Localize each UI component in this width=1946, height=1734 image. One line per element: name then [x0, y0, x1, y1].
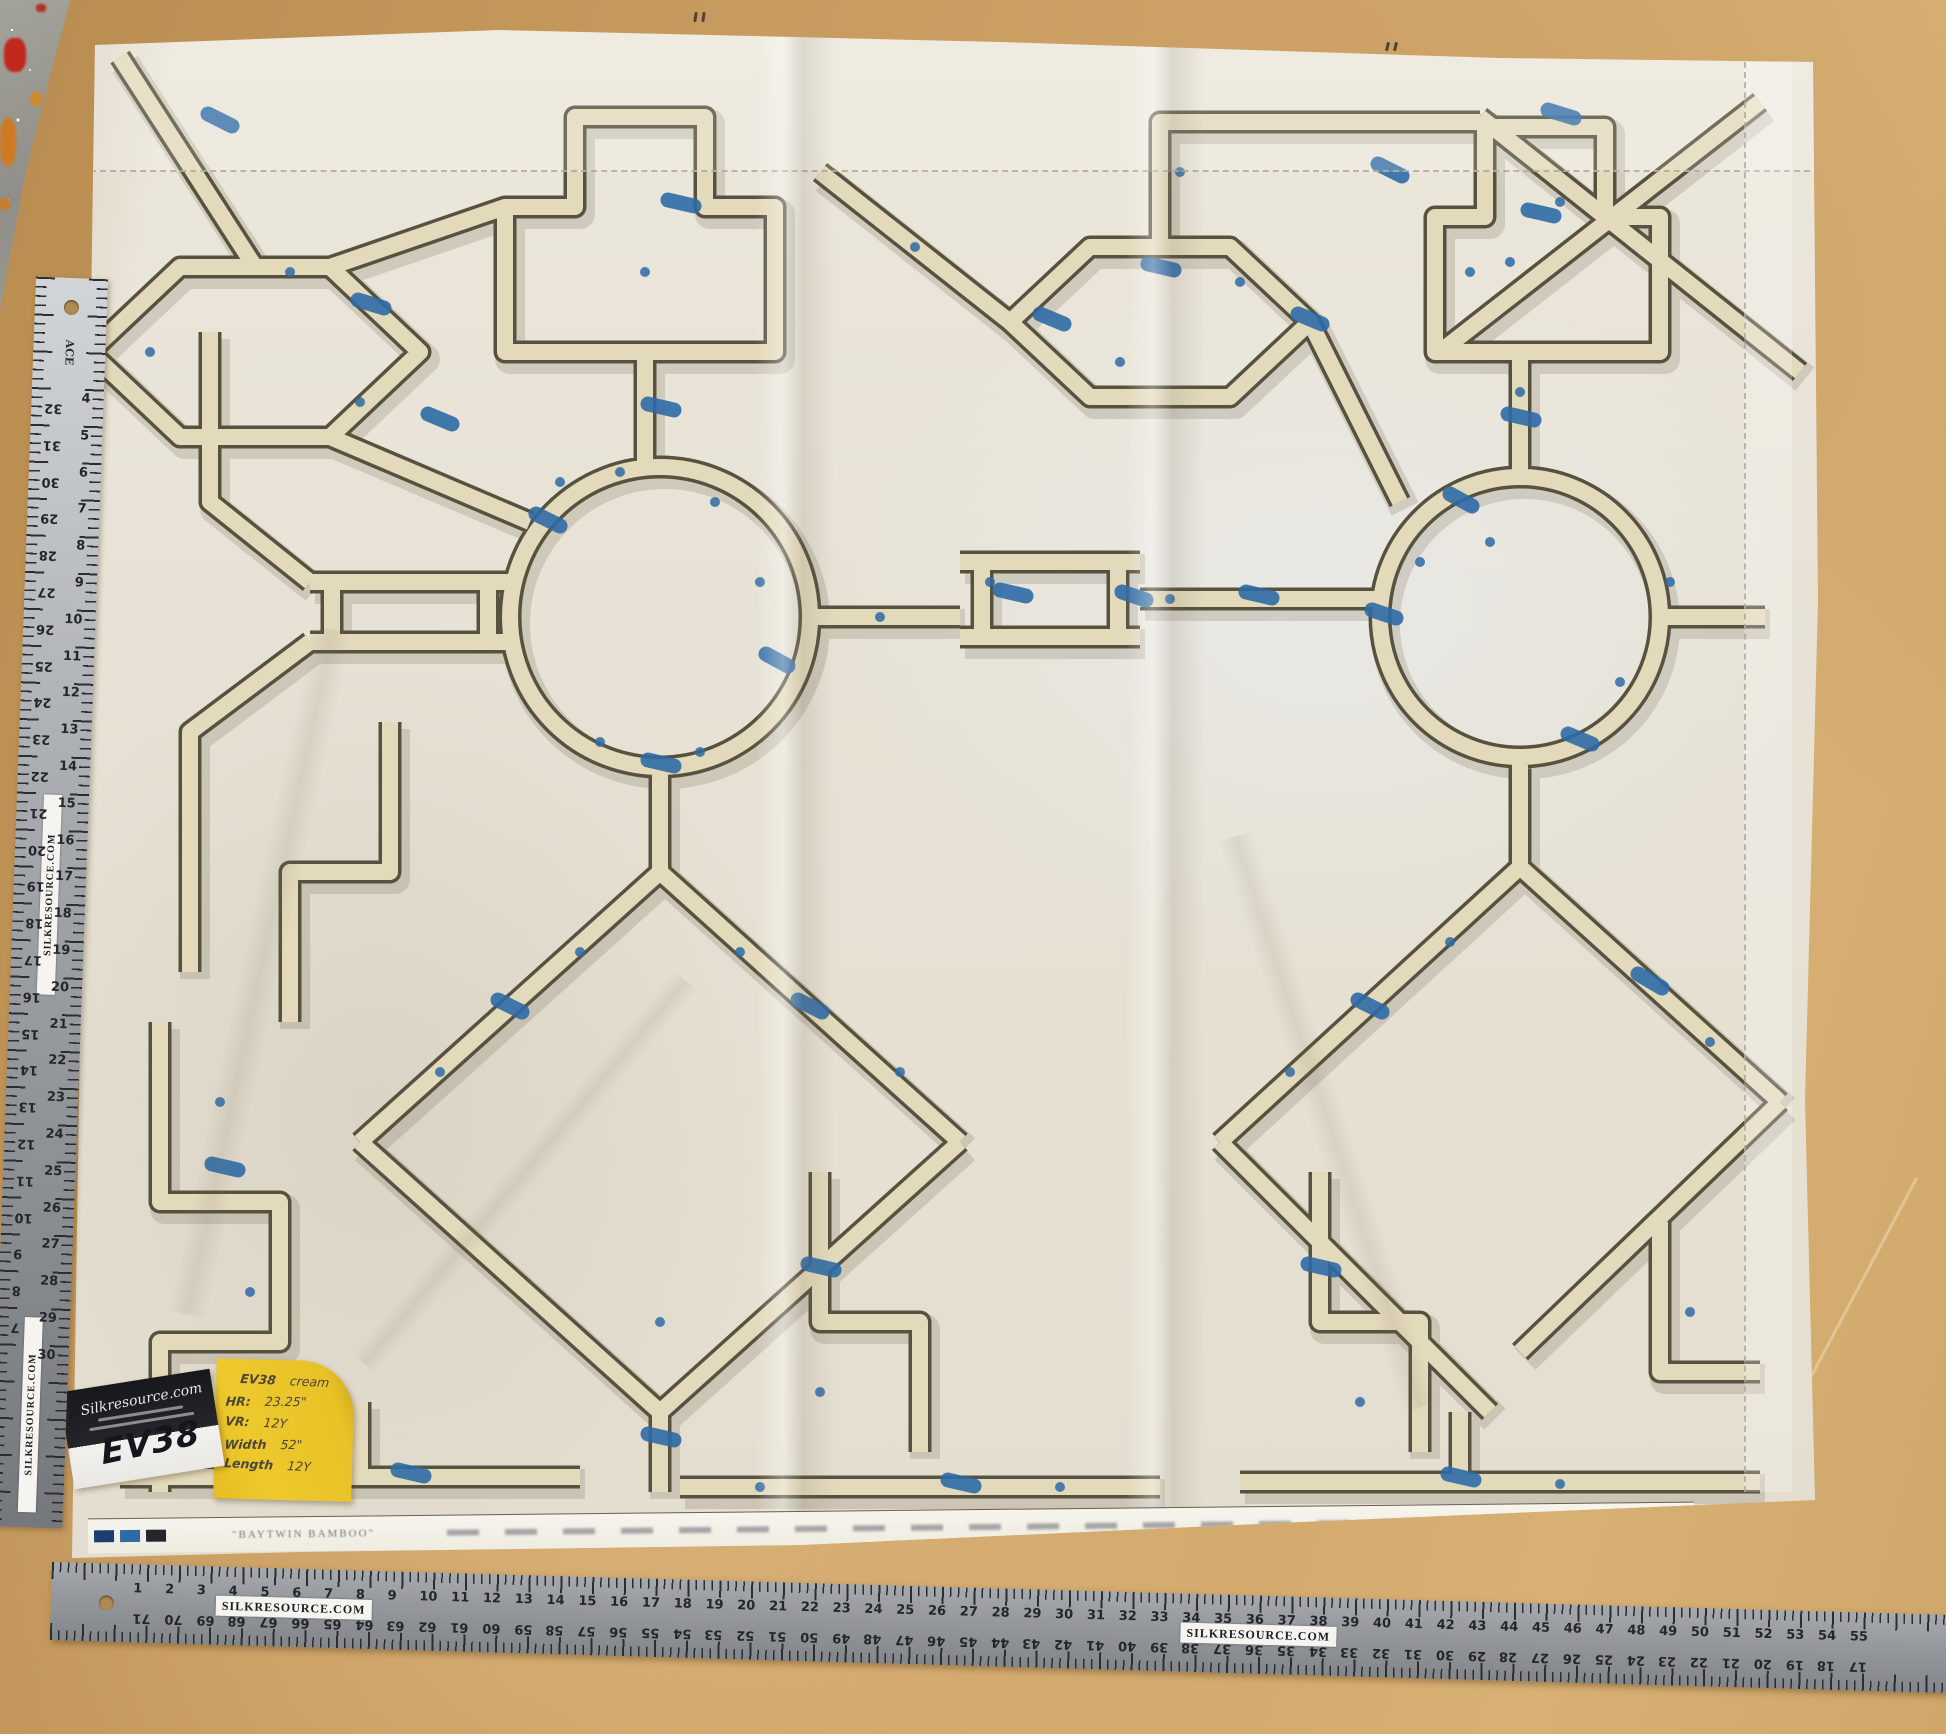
ruler-number: 22: [801, 1600, 820, 1615]
ruler-number: 40: [1118, 1638, 1137, 1653]
ruler-number: 14: [20, 1062, 39, 1078]
ruler-number: 51: [768, 1628, 787, 1643]
ruler-number: 35: [1277, 1642, 1296, 1657]
ruler-number: 45: [959, 1633, 978, 1648]
ruler-number: 2: [165, 1582, 174, 1597]
photo-fabric-sample-scene: { "scene": { "description": "Cream bambo…: [0, 0, 1946, 1734]
ruler-number: 59: [514, 1621, 533, 1636]
ruler-number: 15: [578, 1594, 597, 1609]
ruler-number: 47: [895, 1632, 914, 1647]
ruler-number: 10: [14, 1209, 33, 1225]
ruler-number: 23: [1658, 1653, 1677, 1668]
ruler-number: 22: [30, 768, 49, 784]
ruler-number: 70: [164, 1611, 183, 1626]
ruler-number: 21: [49, 1016, 68, 1032]
ruler-number: 30: [1055, 1607, 1074, 1622]
ruler-number: 18: [53, 906, 72, 922]
ruler-number: 51: [1722, 1626, 1741, 1641]
ruler-number: 21: [769, 1599, 788, 1614]
ruler-number: 27: [1531, 1649, 1550, 1664]
ruler-number: 24: [33, 694, 52, 710]
ruler-number: 10: [419, 1589, 438, 1604]
ruler-number: 13: [60, 722, 79, 738]
ruler-number: 31: [1404, 1646, 1423, 1661]
ruler-number: 18: [673, 1596, 692, 1611]
ruler-number: 55: [1850, 1629, 1869, 1644]
ruler-number: 32: [44, 400, 63, 416]
ruler-number: 50: [800, 1629, 819, 1644]
ruler-number: 28: [991, 1605, 1010, 1620]
ruler-number: 36: [1246, 1612, 1265, 1627]
ruler-number: 50: [1691, 1625, 1710, 1640]
ruler-number: 25: [35, 657, 54, 673]
ruler-number: 16: [610, 1595, 629, 1610]
ruler-number: 27: [37, 584, 56, 600]
ruler-number: 5: [260, 1585, 269, 1600]
ruler-number: 29: [40, 510, 59, 526]
note-handwritten-line: VR:12Y: [224, 1410, 346, 1437]
ruler-number: 55: [641, 1624, 660, 1639]
ruler-number: 16: [22, 988, 41, 1004]
ruler-number: 32: [1372, 1645, 1391, 1660]
ruler-number: 12: [17, 1136, 36, 1152]
red-paint-mark: [36, 4, 46, 12]
ruler-number: 39: [1341, 1615, 1360, 1630]
ruler-number: 71: [132, 1610, 151, 1625]
ruler-number: 11: [451, 1590, 470, 1605]
ruler-number: 9: [387, 1588, 396, 1603]
ruler-number: 18: [25, 915, 44, 931]
ruler-number: 65: [323, 1616, 342, 1631]
ruler-number: 46: [1564, 1621, 1583, 1636]
ruler-number: 68: [228, 1613, 247, 1628]
ruler-number: 34: [1308, 1643, 1327, 1658]
ruler-number: 18: [1817, 1657, 1836, 1672]
ruler-number: 57: [577, 1623, 596, 1638]
ruler-number: 24: [1626, 1652, 1645, 1667]
ruler-number: 19: [26, 878, 45, 894]
orange-paint-mark: [0, 198, 10, 210]
ruler-number: 63: [387, 1617, 406, 1632]
ruler-number: 44: [991, 1634, 1010, 1649]
ruler-number: 6: [292, 1586, 301, 1601]
ruler-number: 25: [44, 1163, 63, 1179]
note-handwritten-line: HR:23.25": [225, 1391, 347, 1413]
ruler-number: 43: [1468, 1619, 1487, 1634]
ruler-number: 12: [483, 1591, 502, 1606]
ruler-number: 20: [1753, 1656, 1772, 1671]
ruler-brand-text: ACE: [62, 339, 76, 365]
ruler-number: 24: [45, 1127, 64, 1143]
ruler-number: 21: [29, 805, 48, 821]
note-handwritten-line: Length12Y: [223, 1452, 345, 1479]
orange-paint-mark: [0, 118, 16, 166]
ruler-number: 27: [41, 1237, 60, 1253]
ruler-number: 17: [55, 869, 74, 885]
ruler-number: 54: [673, 1625, 692, 1640]
ruler-number: 41: [1086, 1637, 1105, 1652]
ruler-number: 9: [75, 575, 85, 590]
yellow-sticky-note: EV38creamHR:23.25"VR:12YWidth52"Length12…: [213, 1358, 355, 1502]
ruler-number: 49: [1659, 1624, 1678, 1639]
ruler-number: 25: [1594, 1651, 1613, 1666]
ruler-number: 11: [16, 1172, 35, 1188]
ruler-number: 13: [515, 1592, 534, 1607]
silkresource-sticker: SILKRESOURCE.COM: [18, 1317, 43, 1513]
ruler-number: 39: [1149, 1639, 1168, 1654]
ruler-number: 14: [546, 1593, 565, 1608]
ruler-number: 26: [43, 1200, 62, 1216]
ruler-number: 56: [609, 1624, 628, 1639]
ruler-number: 8: [12, 1283, 22, 1298]
ruler-hanging-hole: [64, 300, 80, 316]
ruler-number: 8: [356, 1587, 365, 1602]
orange-paint-mark: [30, 92, 42, 106]
ruler-number: 58: [545, 1622, 564, 1637]
ruler-number: 53: [704, 1626, 723, 1641]
ruler-number: 4: [228, 1584, 237, 1599]
ruler-number: 19: [705, 1597, 724, 1612]
ruler-number: 43: [1022, 1635, 1041, 1650]
ruler-number: 30: [37, 1347, 56, 1363]
ruler-number: 52: [736, 1627, 755, 1642]
ruler-number: 26: [36, 621, 55, 637]
ruler-number: 34: [1182, 1611, 1201, 1626]
ruler-number: 13: [18, 1099, 37, 1115]
ruler-number: 25: [896, 1603, 915, 1618]
ruler-number: 38: [1181, 1640, 1200, 1655]
ruler-number: 64: [355, 1616, 374, 1631]
ruler-number: 29: [1467, 1648, 1486, 1663]
ruler-number: 28: [40, 1274, 59, 1290]
ruler-number: 7: [324, 1587, 333, 1602]
ruler-number: 20: [28, 841, 47, 857]
ruler-number: 31: [1087, 1608, 1106, 1623]
ruler-number: 36: [1245, 1641, 1264, 1656]
ruler-number: 23: [47, 1090, 66, 1106]
ruler-number: 35: [1214, 1611, 1233, 1626]
ruler-number: 38: [1309, 1614, 1328, 1629]
ruler-number: 15: [57, 796, 76, 812]
ruler-number: 31: [43, 437, 62, 453]
selvage-color-chip: [146, 1530, 166, 1542]
ruler-number: 14: [59, 759, 78, 775]
ruler-number: 20: [51, 980, 70, 996]
selvage-printed-text: "BAYTWIN BAMBOO": [232, 1527, 375, 1540]
ruler-number: 26: [1563, 1650, 1582, 1665]
ruler-number: 45: [1532, 1620, 1551, 1635]
ruler-number: 44: [1500, 1619, 1519, 1634]
ruler-number: 53: [1786, 1627, 1805, 1642]
selvage-color-chip: [94, 1530, 114, 1542]
fabric-panel: "BAYTWIN BAMBOO": [60, 22, 1820, 1567]
ruler-number: 20: [737, 1598, 756, 1613]
ruler-number: 33: [1340, 1644, 1359, 1659]
ruler-number: 9: [13, 1246, 23, 1261]
ruler-number: 46: [927, 1632, 946, 1647]
ruler-number: 48: [863, 1631, 882, 1646]
ruler-number: 27: [960, 1604, 979, 1619]
ruler-number: 66: [291, 1615, 310, 1630]
ruler-hanging-hole: [99, 1595, 114, 1610]
ruler-number: 40: [1373, 1616, 1392, 1631]
red-paint-mark: [4, 38, 26, 72]
ruler-number: 47: [1595, 1622, 1614, 1637]
card-handwritten-code: EV38: [99, 1412, 202, 1473]
ruler-number: 17: [24, 952, 43, 968]
ruler-number: 28: [1499, 1648, 1518, 1663]
ruler-number: 15: [21, 1025, 40, 1041]
bamboo-trellis-pattern: [60, 22, 1820, 1567]
ruler-number: 33: [1150, 1610, 1169, 1625]
ruler-number: 24: [864, 1602, 883, 1617]
fabric-right-hem: [1744, 52, 1792, 1492]
ruler-number: 42: [1054, 1636, 1073, 1651]
ruler-number: 21: [1722, 1655, 1741, 1670]
ruler-number: 67: [259, 1614, 278, 1629]
ruler-number: 28: [39, 547, 58, 563]
ruler-number: 19: [52, 943, 71, 959]
ruler-number: 69: [196, 1612, 215, 1627]
ruler-number: 29: [39, 1310, 58, 1326]
ruler-number: 32: [1118, 1609, 1137, 1624]
ruler-number: 4: [81, 391, 91, 406]
ruler-number: 23: [832, 1601, 851, 1616]
ruler-number: 37: [1277, 1613, 1296, 1628]
ruler-number: 61: [450, 1619, 469, 1634]
ruler-number: 30: [41, 474, 60, 490]
ruler-number: 49: [832, 1630, 851, 1645]
ruler-number: 54: [1818, 1628, 1837, 1643]
ruler-number: 1: [133, 1581, 142, 1596]
ruler-number: 22: [48, 1053, 67, 1069]
ruler-number: 5: [80, 428, 90, 443]
ruler-number: 8: [76, 539, 86, 554]
ruler-number: 16: [56, 832, 75, 848]
ruler-number: 7: [77, 502, 87, 517]
ruler-number: 42: [1436, 1618, 1455, 1633]
ruler-number: 37: [1213, 1640, 1232, 1655]
ruler-number: 3: [197, 1583, 206, 1598]
ruler-number: 30: [1436, 1647, 1455, 1662]
ruler-number: 62: [418, 1618, 437, 1633]
ruler-number: 48: [1627, 1623, 1646, 1638]
ruler-number: 52: [1754, 1627, 1773, 1642]
ruler-number: 17: [1849, 1658, 1868, 1673]
ruler-number: 10: [64, 612, 83, 628]
ruler-number: 19: [1785, 1656, 1804, 1671]
ruler-number: 26: [928, 1603, 947, 1618]
ruler-number: 23: [32, 731, 51, 747]
ruler-number: 11: [63, 649, 82, 665]
ruler-number: 22: [1690, 1654, 1709, 1669]
ruler-number: 17: [642, 1595, 661, 1610]
ruler-number: 12: [61, 685, 80, 701]
ruler-number: 29: [1023, 1606, 1042, 1621]
selvage-color-chip: [120, 1530, 140, 1542]
ruler-number: 7: [10, 1319, 20, 1334]
ruler-number: 41: [1405, 1617, 1424, 1632]
ruler-number: 6: [79, 465, 89, 480]
ruler-number: 60: [482, 1620, 501, 1635]
